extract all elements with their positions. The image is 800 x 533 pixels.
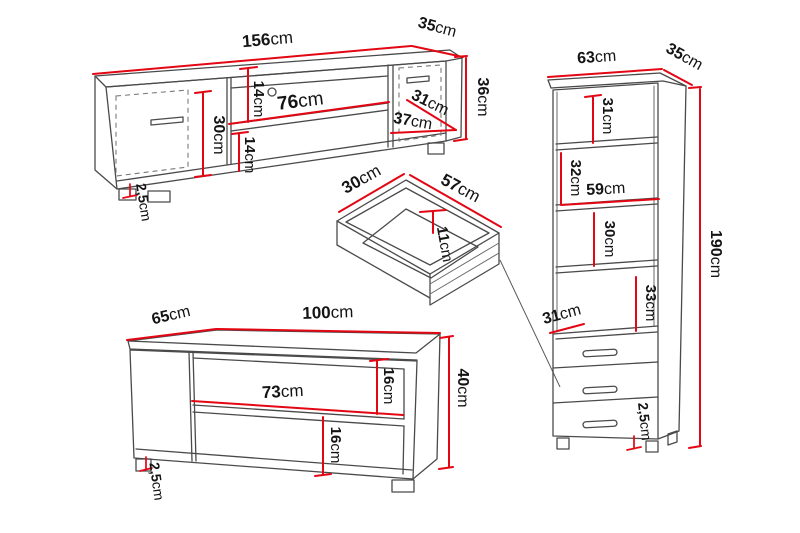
cabinet-gap3-label: 30cm <box>601 221 618 258</box>
table-foot-label: 2,5cm <box>146 461 167 501</box>
cabinet-foot-left <box>557 438 569 449</box>
tv-width-label: 156cm <box>241 28 294 51</box>
cabinet-shelf-3 <box>556 260 657 273</box>
table-bottom-slab <box>136 449 412 470</box>
tv-stand-bottom-slab <box>117 133 446 181</box>
drawer-walls <box>337 221 499 305</box>
table-depth-line <box>127 329 216 340</box>
cabinet-dimensions: 63cm 35cm 190cm 31cm 32cm 59cm 30cm 33cm… <box>541 40 724 450</box>
table-width-label: 100cm <box>302 302 354 323</box>
cabinet-body <box>548 73 686 452</box>
drawer-width-label: 57cm <box>438 170 484 206</box>
table-foot-right <box>392 480 414 492</box>
cabinet-depth-label: 35cm <box>663 40 705 74</box>
table-depth-label: 65cm <box>150 303 192 328</box>
tv-stand-left-door-handle <box>151 117 183 125</box>
tv-stand-foot-right <box>428 143 444 154</box>
cabinet-right-side <box>658 86 686 439</box>
tv-height-label: 36cm <box>474 77 491 116</box>
table-height-label: 40cm <box>454 368 471 407</box>
table-bottom-gap-label: 16cm <box>327 427 344 464</box>
cabinet-width-label: 63cm <box>577 48 617 68</box>
table-right-side <box>413 334 440 479</box>
tall-cabinet: 63cm 35cm 190cm 31cm 32cm 59cm 30cm 33cm… <box>541 40 724 452</box>
furniture-dimension-diagram: 156cm 35cm 36cm 14cm 76cm 14cm 30cm 31cm… <box>0 0 800 533</box>
table-shelf-width-label: 73cm <box>261 381 304 402</box>
tv-stand-left-door <box>116 90 188 176</box>
cabinet-gap1-label: 31cm <box>599 98 616 135</box>
drawer-floor <box>363 209 478 278</box>
cabinet-foot-label: 2,5cm <box>635 402 655 442</box>
cabinet-shelf-width-line <box>561 199 659 205</box>
drawer-height-label: 11cm <box>433 225 456 263</box>
table-top-slab-edge <box>128 341 417 360</box>
table-top-gap-label: 16cm <box>380 368 397 405</box>
cabinet-drawer-handle-1 <box>583 349 617 357</box>
table-left-divider <box>189 352 196 461</box>
tv-door-height-label: 30cm <box>210 115 227 154</box>
drawer-depth-label: 30cm <box>339 161 385 198</box>
cabinet-drawer-divider-1 <box>553 362 658 368</box>
tv-foot-label: 2,5cm <box>133 182 155 222</box>
table-height-line <box>439 336 453 469</box>
tv-shelf-width-label: 76cm <box>276 88 325 115</box>
tv-stand-foot-left <box>119 189 136 200</box>
cabinet-foot-side <box>668 431 677 445</box>
cabinet-foot-right <box>646 441 658 452</box>
cabinet-gap4-label: 33cm <box>642 285 659 322</box>
cabinet-gap1-line <box>585 95 601 143</box>
cabinet-height-label: 190cm <box>707 230 724 278</box>
tv-stand-right-door-handle <box>407 76 429 83</box>
cabinet-shelf-1 <box>556 137 657 150</box>
tv-top-gap-label: 14cm <box>250 81 267 118</box>
tv-bottom-gap-label: 14cm <box>241 137 258 174</box>
cable-hole <box>268 88 276 96</box>
cabinet-drawer-handle-2 <box>583 386 617 394</box>
tv-stand-divider-right <box>388 65 393 147</box>
tv-depth-line <box>412 46 463 57</box>
tv-depth-label: 35cm <box>416 14 458 41</box>
tv-door-height-line <box>195 91 211 177</box>
cabinet-height-line <box>689 87 701 448</box>
coffee-table: 65cm 100cm 40cm 16cm 73cm 16cm 2,5cm <box>127 302 471 501</box>
tv-stand: 156cm 35cm 36cm 14cm 76cm 14cm 30cm 31cm… <box>93 14 491 222</box>
cabinet-gap2-label: 32cm <box>567 160 584 197</box>
table-shelf-width-line <box>192 401 403 415</box>
cabinet-drawer-depth-label: 31cm <box>541 301 583 328</box>
table-opening-right-edge <box>403 369 404 474</box>
coffee-table-body <box>128 330 440 492</box>
cabinet-shelf-width-label: 59cm <box>586 180 626 199</box>
diagram-canvas: 156cm 35cm 36cm 14cm 76cm 14cm 30cm 31cm… <box>0 0 800 533</box>
cabinet-drawer-handle-3 <box>583 420 617 428</box>
